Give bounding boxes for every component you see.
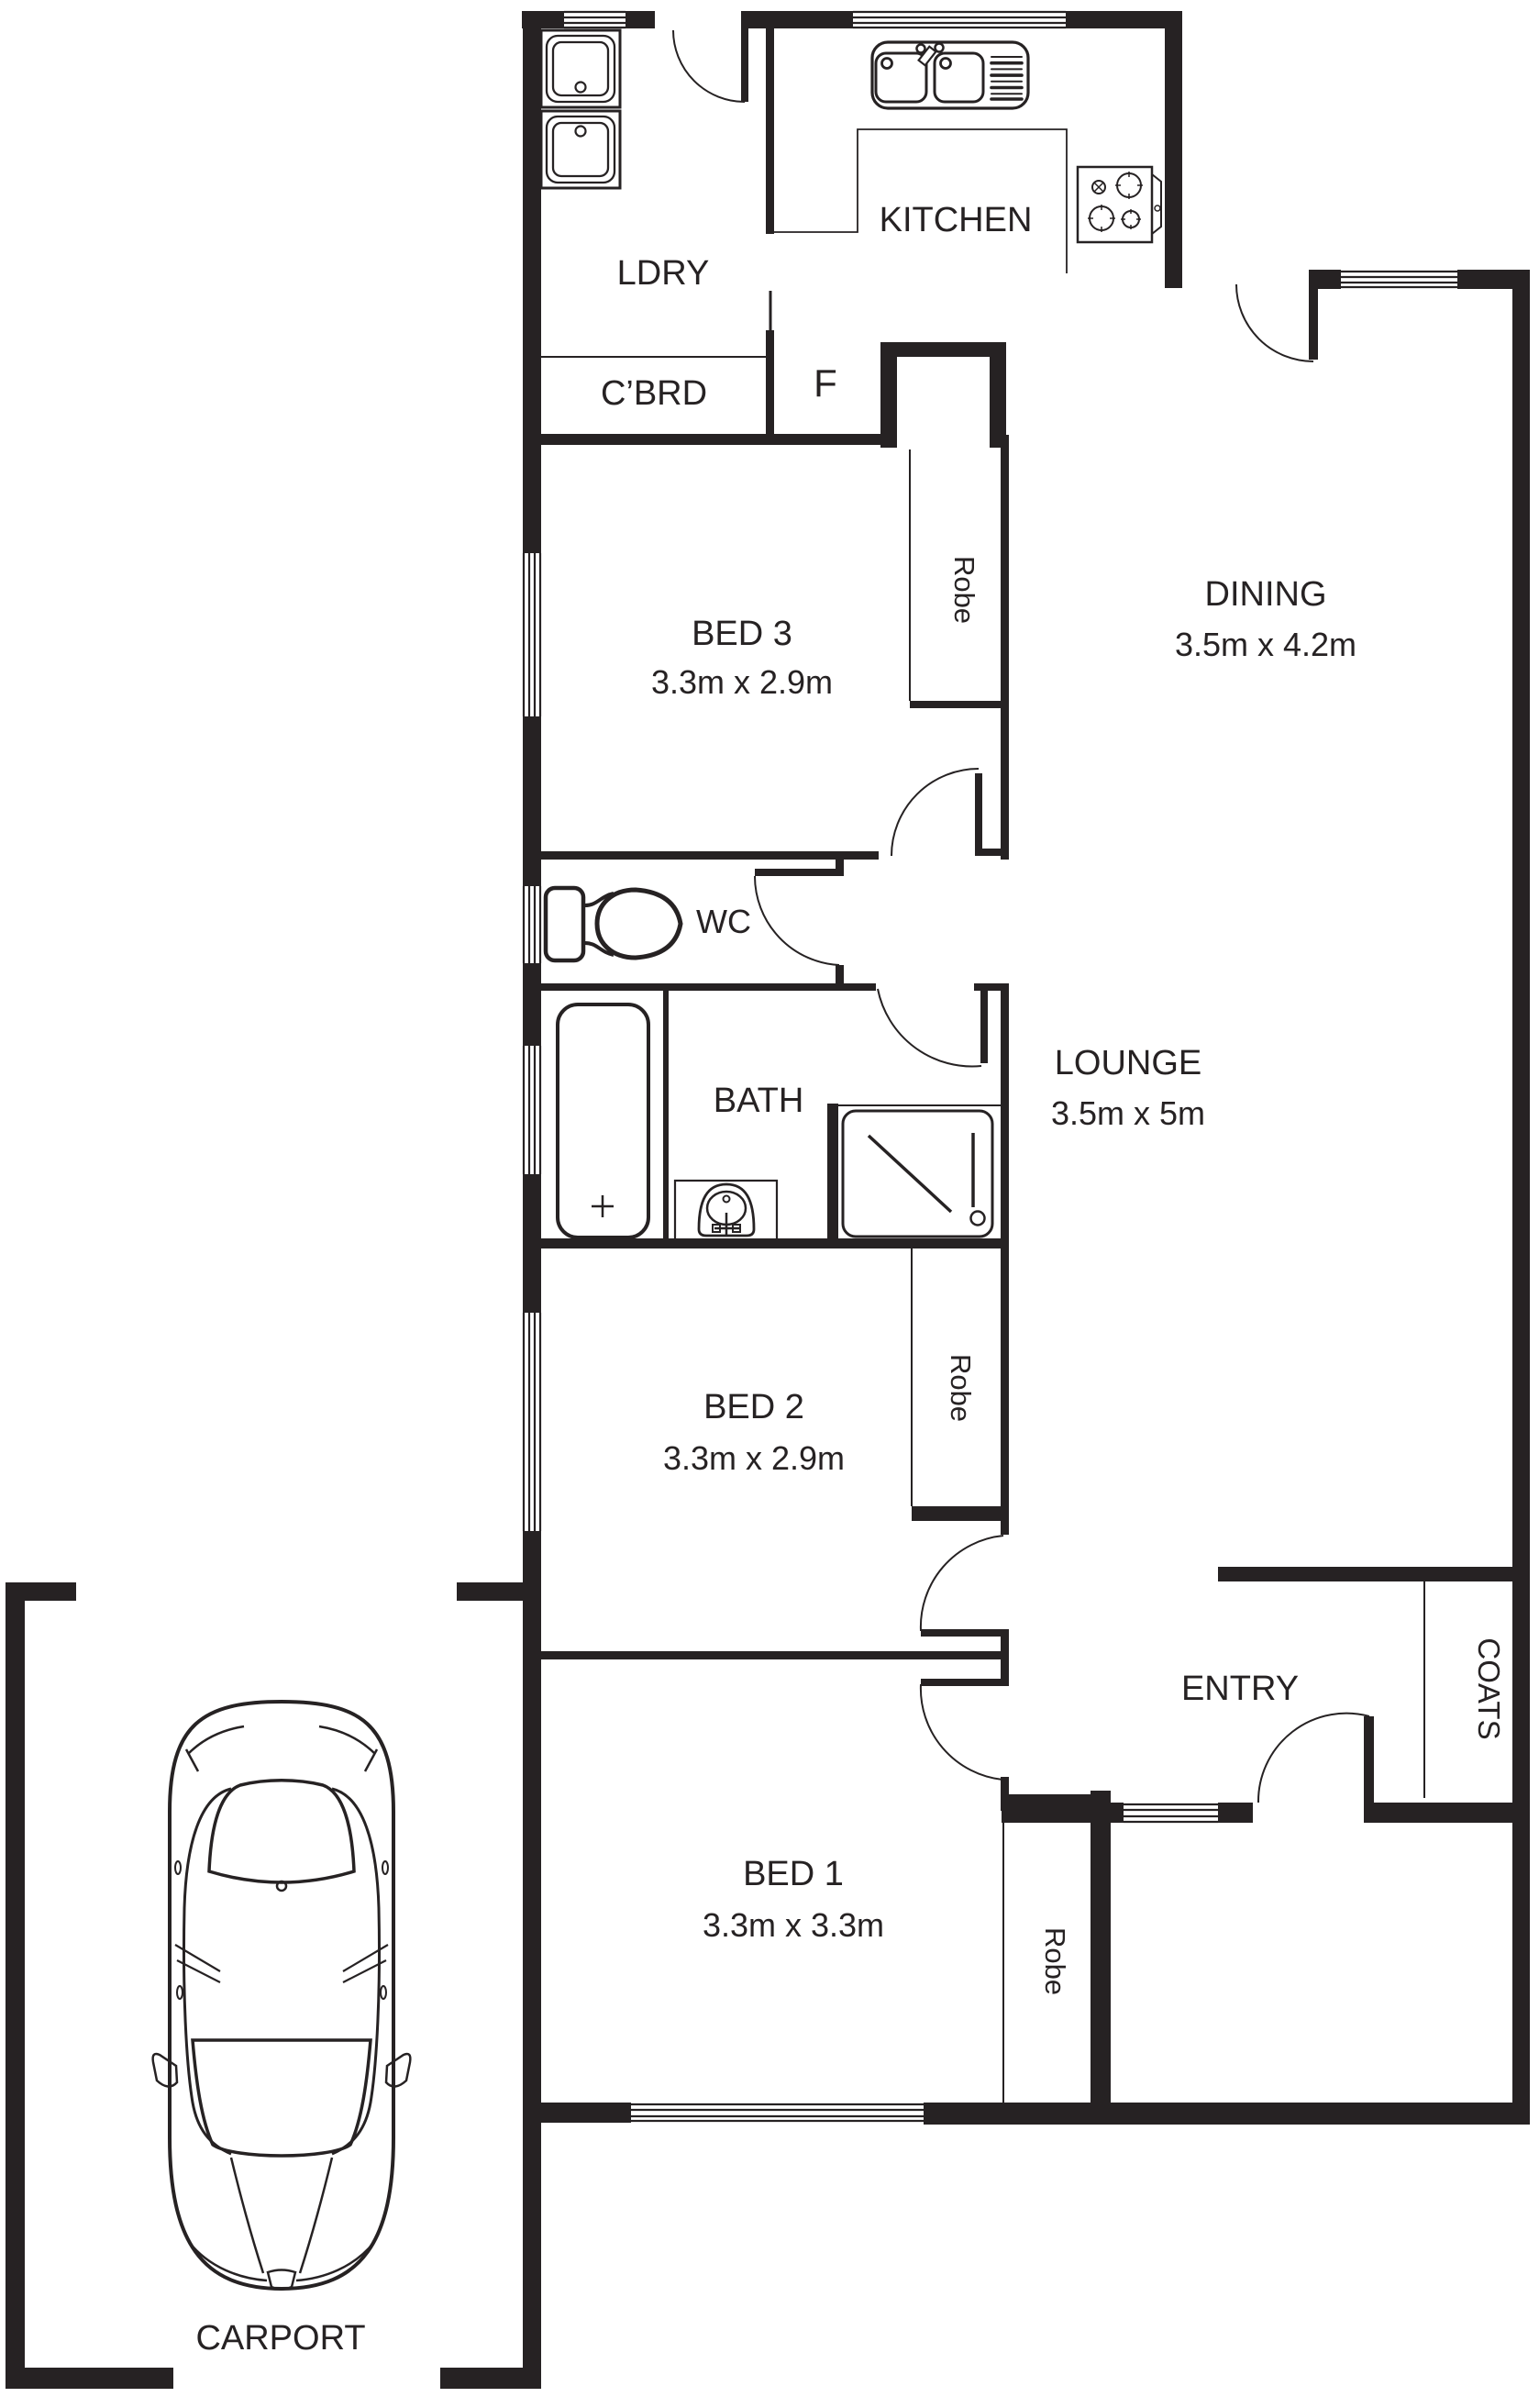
svg-text:3.5m x 5m: 3.5m x 5m bbox=[1051, 1094, 1205, 1132]
svg-text:F: F bbox=[814, 361, 837, 405]
svg-text:Robe: Robe bbox=[945, 1354, 977, 1422]
svg-text:3.3m x 2.9m: 3.3m x 2.9m bbox=[663, 1439, 845, 1477]
svg-text:CARPORT: CARPORT bbox=[195, 2319, 365, 2358]
svg-text:BATH: BATH bbox=[714, 1082, 804, 1120]
svg-text:DINING: DINING bbox=[1205, 575, 1327, 614]
svg-text:3.3m x 2.9m: 3.3m x 2.9m bbox=[651, 663, 833, 701]
svg-text:Robe: Robe bbox=[948, 556, 980, 624]
svg-text:BED 2: BED 2 bbox=[703, 1388, 804, 1426]
svg-text:C’BRD: C’BRD bbox=[601, 374, 707, 413]
svg-text:ENTRY: ENTRY bbox=[1181, 1670, 1299, 1708]
svg-text:LDRY: LDRY bbox=[617, 254, 710, 293]
svg-text:COATS: COATS bbox=[1472, 1637, 1506, 1739]
svg-text:BED 3: BED 3 bbox=[692, 615, 792, 653]
svg-text:Robe: Robe bbox=[1039, 1927, 1071, 1995]
svg-text:3.3m x 3.3m: 3.3m x 3.3m bbox=[703, 1906, 884, 1944]
svg-text:LOUNGE: LOUNGE bbox=[1055, 1044, 1201, 1082]
svg-text:BED 1: BED 1 bbox=[743, 1855, 844, 1893]
svg-text:WC: WC bbox=[696, 903, 751, 940]
svg-text:KITCHEN: KITCHEN bbox=[880, 201, 1033, 239]
svg-text:3.5m x 4.2m: 3.5m x 4.2m bbox=[1175, 626, 1356, 663]
